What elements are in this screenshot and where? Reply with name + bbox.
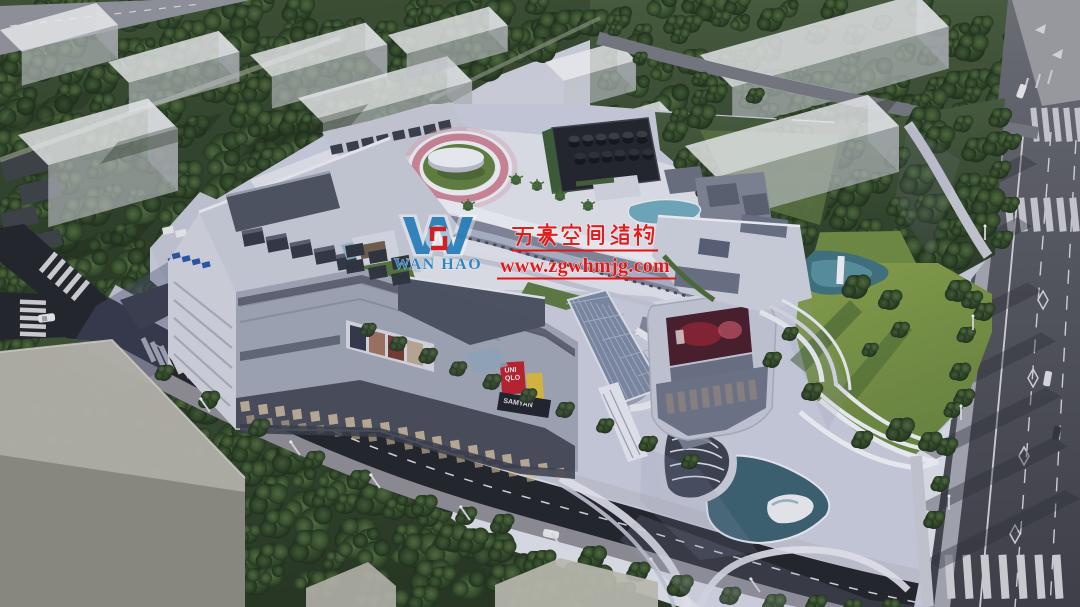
svg-text:www.zgwhmjg.com: www.zgwhmjg.com <box>500 255 670 277</box>
svg-text:WAN HAO: WAN HAO <box>394 256 482 273</box>
